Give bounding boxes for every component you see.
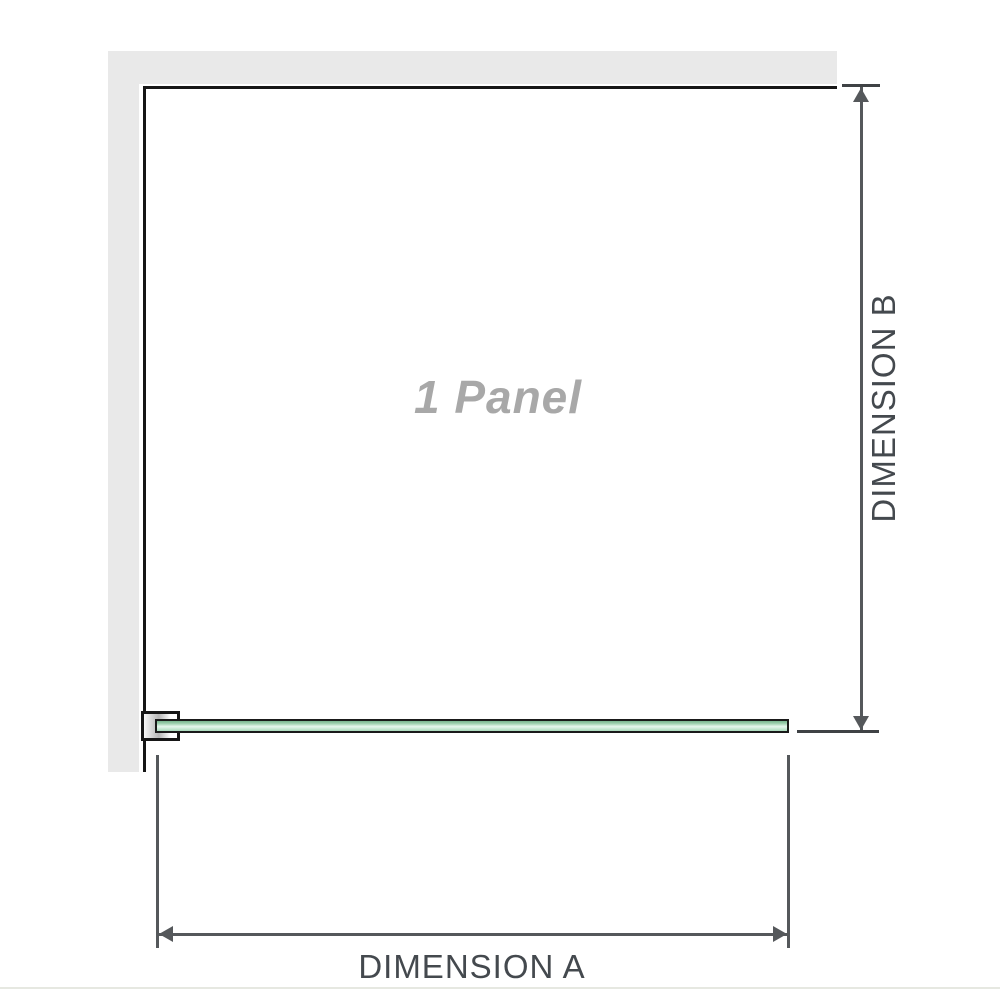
dimension-b-line	[860, 85, 863, 733]
dimension-b-top-tick	[842, 84, 880, 87]
wall-left	[108, 51, 139, 772]
panel-dimension-diagram: DIMENSION B DIMENSION A 1 Panel	[0, 0, 1000, 1000]
dimension-a-line	[159, 933, 787, 936]
dimension-b-label: DIMENSION B	[865, 293, 903, 522]
bottom-divider	[0, 987, 1000, 989]
dimension-b-bottom-tick	[797, 730, 879, 733]
arrow-up-icon	[853, 88, 869, 102]
glass-panel-strip	[155, 719, 789, 733]
panel-count-label: 1 Panel	[414, 370, 582, 424]
arrow-down-icon	[853, 716, 869, 730]
wall-top	[108, 51, 837, 84]
dimension-a-right-extension-line	[787, 755, 790, 948]
arrow-right-icon	[773, 926, 787, 942]
dimension-a-label: DIMENSION A	[358, 948, 585, 986]
arrow-left-icon	[159, 926, 173, 942]
panel-left-edge	[143, 86, 146, 772]
dimension-a-left-extension-line	[156, 755, 159, 948]
panel-top-edge	[143, 86, 837, 89]
